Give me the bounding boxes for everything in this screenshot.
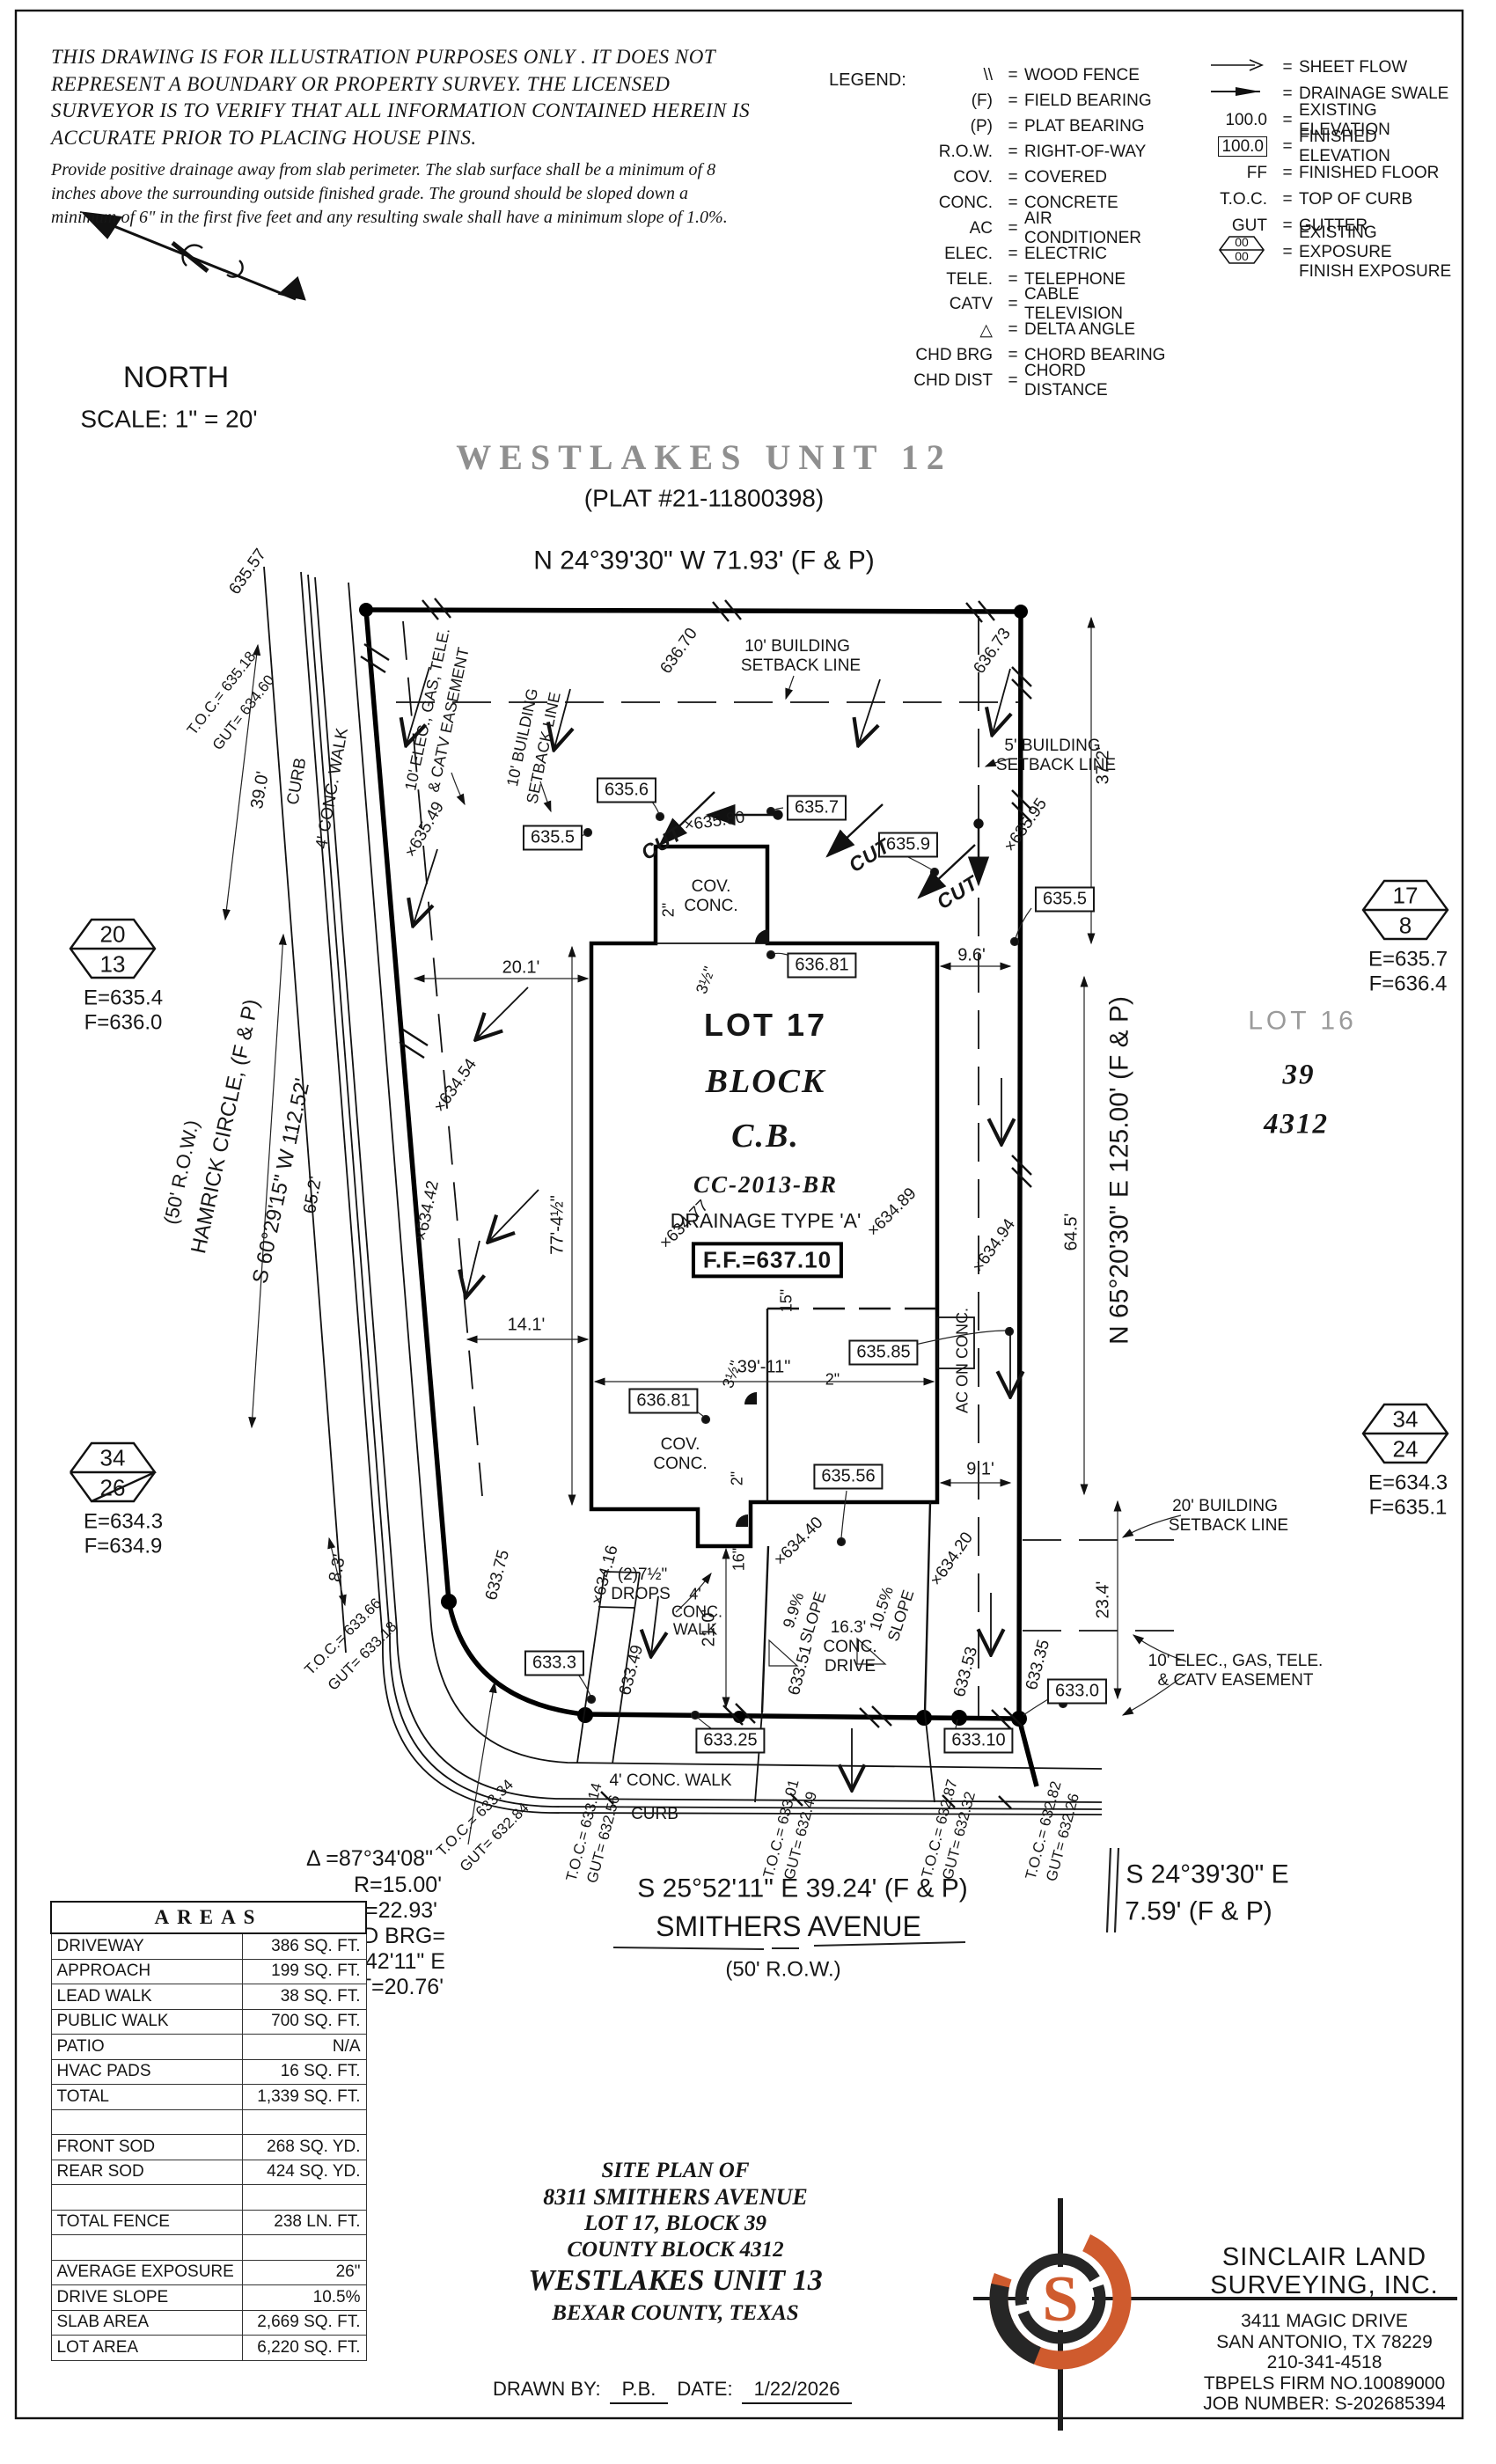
areas-row-value: 26" bbox=[242, 2260, 366, 2285]
plan-label: 635.6 bbox=[597, 778, 656, 803]
plan-label: ×635.80 bbox=[683, 809, 745, 834]
plan-label: SCALE: 1" = 20' bbox=[80, 406, 257, 431]
areas-row: PATION/A bbox=[51, 2035, 366, 2060]
plan-label: 636.73 bbox=[971, 625, 1015, 677]
areas-row-value: N/A bbox=[242, 2035, 366, 2060]
areas-row-label: TOTAL FENCE bbox=[51, 2210, 242, 2235]
areas-row-label: DRIVE SLOPE bbox=[51, 2285, 242, 2311]
plan-label: 635.5 bbox=[523, 825, 583, 851]
plan-label: R=15.00' bbox=[354, 1874, 442, 1896]
title-line3: LOT 17, BLOCK 39 bbox=[497, 2211, 854, 2237]
areas-row-value: 386 SQ. FT. bbox=[242, 1933, 366, 1959]
plan-label: AC ON CONC. bbox=[955, 1308, 972, 1413]
plan-label: E=634.3 bbox=[84, 1510, 163, 1532]
areas-row: DRIVEWAY386 SQ. FT. bbox=[51, 1933, 366, 1959]
firm-name: SINCLAIR LAND SURVEYING, INC. bbox=[1190, 2244, 1459, 2300]
plan-label: NORTH bbox=[123, 363, 229, 394]
title-line2: 8311 SMITHERS AVENUE bbox=[497, 2184, 854, 2211]
plan-label: 64.5' bbox=[1063, 1214, 1082, 1251]
plan-label: E=635.4 bbox=[84, 986, 163, 1008]
areas-row-label: LEAD WALK bbox=[51, 1984, 242, 2010]
title-line4: COUNTY BLOCK 4312 bbox=[497, 2237, 854, 2263]
plan-label: 635.85 bbox=[848, 1340, 918, 1366]
plan-label: (2)7½" bbox=[618, 1566, 667, 1584]
areas-row-value: 424 SQ. YD. bbox=[242, 2160, 366, 2185]
areas-row-value bbox=[242, 2235, 366, 2261]
plan-label: 8.3' bbox=[326, 1553, 349, 1584]
plan-label: 3½" bbox=[720, 1359, 744, 1390]
areas-row-value: 268 SQ. YD. bbox=[242, 2135, 366, 2160]
areas-row-label bbox=[51, 2185, 242, 2211]
areas-row-label: APPROACH bbox=[51, 1959, 242, 1984]
plan-label: 20 bbox=[100, 922, 126, 946]
title-line6: BEXAR COUNTY, TEXAS bbox=[497, 2300, 854, 2327]
plan-label: 8 bbox=[1399, 913, 1412, 937]
plan-label: COV. bbox=[692, 878, 731, 896]
plan-label: LOT 17 bbox=[704, 1008, 827, 1042]
plan-label: CUT bbox=[637, 822, 686, 863]
plan-label: 16.3' bbox=[831, 1619, 867, 1637]
plan-label: 636.81 bbox=[787, 953, 856, 979]
plan-label: F=636.0 bbox=[84, 1011, 163, 1033]
plan-label: ×634.20 bbox=[928, 1529, 977, 1589]
areas-row: APPROACH199 SQ. FT. bbox=[51, 1959, 366, 1984]
areas-row bbox=[51, 2185, 366, 2211]
title-line1: SITE PLAN OF bbox=[497, 2158, 854, 2184]
plan-label: 39'-11" bbox=[737, 1359, 791, 1377]
title-block: SITE PLAN OF 8311 SMITHERS AVENUE LOT 17… bbox=[497, 2158, 854, 2326]
plan-label: 10' BUILDING bbox=[744, 638, 850, 656]
plan-label: 4' CONC. WALK bbox=[313, 727, 352, 850]
plan-label: N 24°39'30" W 71.93' (F & P) bbox=[533, 546, 875, 575]
plan-label: 13 bbox=[100, 952, 126, 976]
areas-row-value: 38 SQ. FT. bbox=[242, 1984, 366, 2010]
plan-label: 15" bbox=[779, 1289, 796, 1312]
plan-label: 34 bbox=[100, 1446, 126, 1470]
plan-label: ×634.42 bbox=[413, 1179, 443, 1243]
plan-label: 9.6' bbox=[957, 947, 986, 965]
plan-label: 635.57 bbox=[226, 546, 270, 598]
plan-label: 37.2' bbox=[1095, 747, 1113, 785]
plan-label: 20.1' bbox=[502, 959, 540, 978]
plan-label: 3½" bbox=[693, 964, 718, 996]
areas-row-label bbox=[51, 2109, 242, 2135]
plan-label: CUT bbox=[933, 871, 981, 913]
plan-label: F=635.1 bbox=[1369, 1496, 1448, 1518]
plan-label: E=635.7 bbox=[1368, 948, 1448, 970]
plan-label: 633.25 bbox=[695, 1728, 765, 1754]
areas-row-value bbox=[242, 2185, 366, 2211]
plan-label: 635.5 bbox=[1035, 887, 1095, 913]
areas-row: AVERAGE EXPOSURE26" bbox=[51, 2260, 366, 2285]
areas-row: FRONT SOD268 SQ. YD. bbox=[51, 2135, 366, 2160]
plan-label: LOT 16 bbox=[1248, 1007, 1357, 1035]
areas-row-value: 238 LN. FT. bbox=[242, 2210, 366, 2235]
areas-row: DRIVE SLOPE10.5% bbox=[51, 2285, 366, 2311]
plan-label: SMITHERS AVENUE bbox=[656, 1912, 921, 1942]
plan-label: 635.7 bbox=[787, 796, 847, 821]
drawn-by-value: P.B. bbox=[610, 2378, 669, 2404]
plan-label: DROPS bbox=[611, 1586, 671, 1603]
areas-row-label: PATIO bbox=[51, 2035, 242, 2060]
areas-row-value: 6,220 SQ. FT. bbox=[242, 2336, 366, 2361]
areas-row-label: DRIVEWAY bbox=[51, 1933, 242, 1959]
areas-row: REAR SOD424 SQ. YD. bbox=[51, 2160, 366, 2185]
plan-label: F.F.=637.10 bbox=[692, 1242, 843, 1278]
firm-phone: 210-341-4518 bbox=[1190, 2352, 1459, 2373]
plan-label: 16" bbox=[731, 1548, 748, 1571]
firm-name-line2: SURVEYING, INC. bbox=[1190, 2272, 1459, 2300]
plan-label: 633.53 bbox=[951, 1645, 981, 1698]
areas-row-label: SLAB AREA bbox=[51, 2310, 242, 2336]
plan-label: CURB bbox=[285, 757, 311, 806]
areas-body: DRIVEWAY386 SQ. FT.APPROACH199 SQ. FT.LE… bbox=[51, 1933, 366, 2360]
plan-label: E=634.3 bbox=[1368, 1471, 1448, 1493]
plan-label: ×634.40 bbox=[771, 1514, 826, 1569]
plan-label: 39 bbox=[1283, 1060, 1316, 1091]
drawn-by-row: DRAWN BY:P.B.DATE:1/22/2026 bbox=[493, 2378, 861, 2404]
plan-label: N 65°20'30" E 125.00' (F & P) bbox=[1105, 996, 1133, 1345]
plan-label: DRIVE bbox=[825, 1658, 876, 1676]
areas-row-label: HVAC PADS bbox=[51, 2059, 242, 2085]
areas-row bbox=[51, 2235, 366, 2261]
areas-row-value: 16 SQ. FT. bbox=[242, 2059, 366, 2085]
areas-row: TOTAL1,339 SQ. FT. bbox=[51, 2085, 366, 2110]
areas-row-value: 199 SQ. FT. bbox=[242, 1959, 366, 1984]
firm-addr1: 3411 MAGIC DRIVE bbox=[1190, 2311, 1459, 2332]
plan-label: SETBACK LINE bbox=[1169, 1517, 1288, 1535]
plan-label: 20' BUILDING bbox=[1172, 1498, 1278, 1515]
date-value: 1/22/2026 bbox=[742, 2378, 853, 2404]
plan-label: CONC. bbox=[684, 898, 737, 915]
plan-label: (50' R.O.W.) bbox=[725, 1958, 840, 1980]
plan-label: 2" bbox=[825, 1372, 840, 1389]
plan-label: 633.3 bbox=[524, 1651, 584, 1676]
plan-label: 2" bbox=[730, 1471, 746, 1485]
plan-label: CC-2013-BR bbox=[693, 1172, 838, 1197]
plan-label: ×634.94 bbox=[970, 1216, 1019, 1276]
areas-row: TOTAL FENCE238 LN. FT. bbox=[51, 2210, 366, 2235]
firm-number: TBPELS FIRM NO.10089000 bbox=[1190, 2373, 1459, 2394]
areas-row: LEAD WALK38 SQ. FT. bbox=[51, 1984, 366, 2010]
site-plan-sheet: S THIS DRAWING IS FOR ILLUSTRATION PURPO… bbox=[0, 0, 1496, 2464]
plan-label: 23.4' bbox=[1095, 1581, 1113, 1619]
plan-label: 17 bbox=[1393, 884, 1419, 907]
areas-row-label bbox=[51, 2235, 242, 2261]
title-line5: WESTLAKES UNIT 13 bbox=[497, 2262, 854, 2300]
plan-label: S 60°29'15" W 112.52' bbox=[249, 1076, 314, 1286]
plan-label: ×634.89 bbox=[864, 1184, 920, 1240]
plan-label: (PLAT #21-11800398) bbox=[584, 485, 824, 510]
areas-table: AREAS DRIVEWAY386 SQ. FT.APPROACH199 SQ.… bbox=[50, 1901, 367, 2361]
plan-label: 65.2' bbox=[301, 1175, 326, 1215]
plan-label: 633.75 bbox=[483, 1548, 513, 1602]
plan-label: 633.10 bbox=[943, 1728, 1013, 1754]
areas-row-label: REAR SOD bbox=[51, 2160, 242, 2185]
plan-label: COV. bbox=[661, 1436, 700, 1454]
plan-label: WESTLAKES UNIT 12 bbox=[456, 439, 952, 476]
drawn-by-label: DRAWN BY: bbox=[493, 2378, 601, 2400]
areas-row-label: PUBLIC WALK bbox=[51, 2009, 242, 2035]
plan-label: 10' ELEC., GAS, TELE. bbox=[1148, 1653, 1324, 1670]
areas-row-value: 10.5% bbox=[242, 2285, 366, 2311]
areas-row bbox=[51, 2109, 366, 2135]
plan-label: 4' bbox=[689, 1587, 700, 1603]
plan-label: F=636.4 bbox=[1369, 972, 1448, 994]
areas-row-label: AVERAGE EXPOSURE bbox=[51, 2260, 242, 2285]
plan-label: 7.59' (F & P) bbox=[1125, 1897, 1272, 1925]
areas-row-value: 2,669 SQ. FT. bbox=[242, 2310, 366, 2336]
firm-name-line1: SINCLAIR LAND bbox=[1190, 2244, 1459, 2272]
plan-label: 636.70 bbox=[657, 625, 701, 677]
plan-label: S 24°39'30" E bbox=[1126, 1860, 1288, 1888]
plan-label: CUT bbox=[845, 834, 893, 876]
plan-label: 633.49 bbox=[617, 1643, 647, 1697]
plan-label: CONC. bbox=[823, 1639, 876, 1656]
areas-row: PUBLIC WALK700 SQ. FT. bbox=[51, 2009, 366, 2035]
plan-label: Δ =87°34'08" bbox=[306, 1847, 433, 1870]
plan-label: 4' CONC. WALK bbox=[609, 1772, 731, 1790]
areas-row-value: 1,339 SQ. FT. bbox=[242, 2085, 366, 2110]
plan-label: S 25°52'11" E 39.24' (F & P) bbox=[637, 1874, 967, 1903]
plan-label: C.B. bbox=[731, 1119, 800, 1155]
plan-label: 635.56 bbox=[813, 1464, 883, 1490]
plan-label: 633.51 bbox=[786, 1643, 816, 1697]
areas-row-label: LOT AREA bbox=[51, 2336, 242, 2361]
areas-row-label: TOTAL bbox=[51, 2085, 242, 2110]
areas-row-value bbox=[242, 2109, 366, 2135]
plan-label: BLOCK bbox=[706, 1065, 826, 1100]
areas-title: AREAS bbox=[51, 1902, 366, 1933]
plan-label: 34 bbox=[1393, 1407, 1419, 1431]
date-label: DATE: bbox=[677, 2378, 732, 2400]
plan-label: 21.0' bbox=[700, 1610, 719, 1647]
firm-address: 3411 MAGIC DRIVE SAN ANTONIO, TX 78229 2… bbox=[1190, 2311, 1459, 2415]
areas-row: SLAB AREA2,669 SQ. FT. bbox=[51, 2310, 366, 2336]
plan-label: 2" bbox=[661, 903, 678, 917]
plan-label: ×634.54 bbox=[431, 1056, 480, 1116]
firm-addr2: SAN ANTONIO, TX 78229 bbox=[1190, 2332, 1459, 2353]
plan-label: 24 bbox=[1393, 1437, 1419, 1461]
plan-label: ×635.49 bbox=[402, 799, 448, 861]
plan-label: ×635.95 bbox=[1001, 796, 1051, 855]
plan-label: SETBACK LINE bbox=[741, 657, 861, 675]
plan-label: F=634.9 bbox=[84, 1535, 163, 1557]
plan-label: 14.1' bbox=[508, 1316, 546, 1335]
plan-label: 39.0' bbox=[248, 770, 273, 810]
plan-label: CURB bbox=[631, 1806, 678, 1823]
plan-label: & CATV EASEMENT bbox=[1157, 1672, 1313, 1690]
plan-label: 633.0 bbox=[1047, 1679, 1107, 1705]
plan-label: 636.81 bbox=[628, 1389, 698, 1414]
areas-row-value: 700 SQ. FT. bbox=[242, 2009, 366, 2035]
plan-label: 26 bbox=[100, 1476, 126, 1500]
plan-label: 77'-4½" bbox=[549, 1195, 568, 1255]
plan-label: 4312 bbox=[1264, 1110, 1329, 1140]
plan-label: 5' BUILDING bbox=[1004, 737, 1100, 755]
areas-row: HVAC PADS16 SQ. FT. bbox=[51, 2059, 366, 2085]
plan-label: 9.1' bbox=[966, 1461, 994, 1479]
areas-row-label: FRONT SOD bbox=[51, 2135, 242, 2160]
plan-label: CONC. bbox=[653, 1456, 707, 1473]
firm-job-number: JOB NUMBER: S-202685394 bbox=[1190, 2394, 1459, 2415]
areas-row: LOT AREA6,220 SQ. FT. bbox=[51, 2336, 366, 2361]
